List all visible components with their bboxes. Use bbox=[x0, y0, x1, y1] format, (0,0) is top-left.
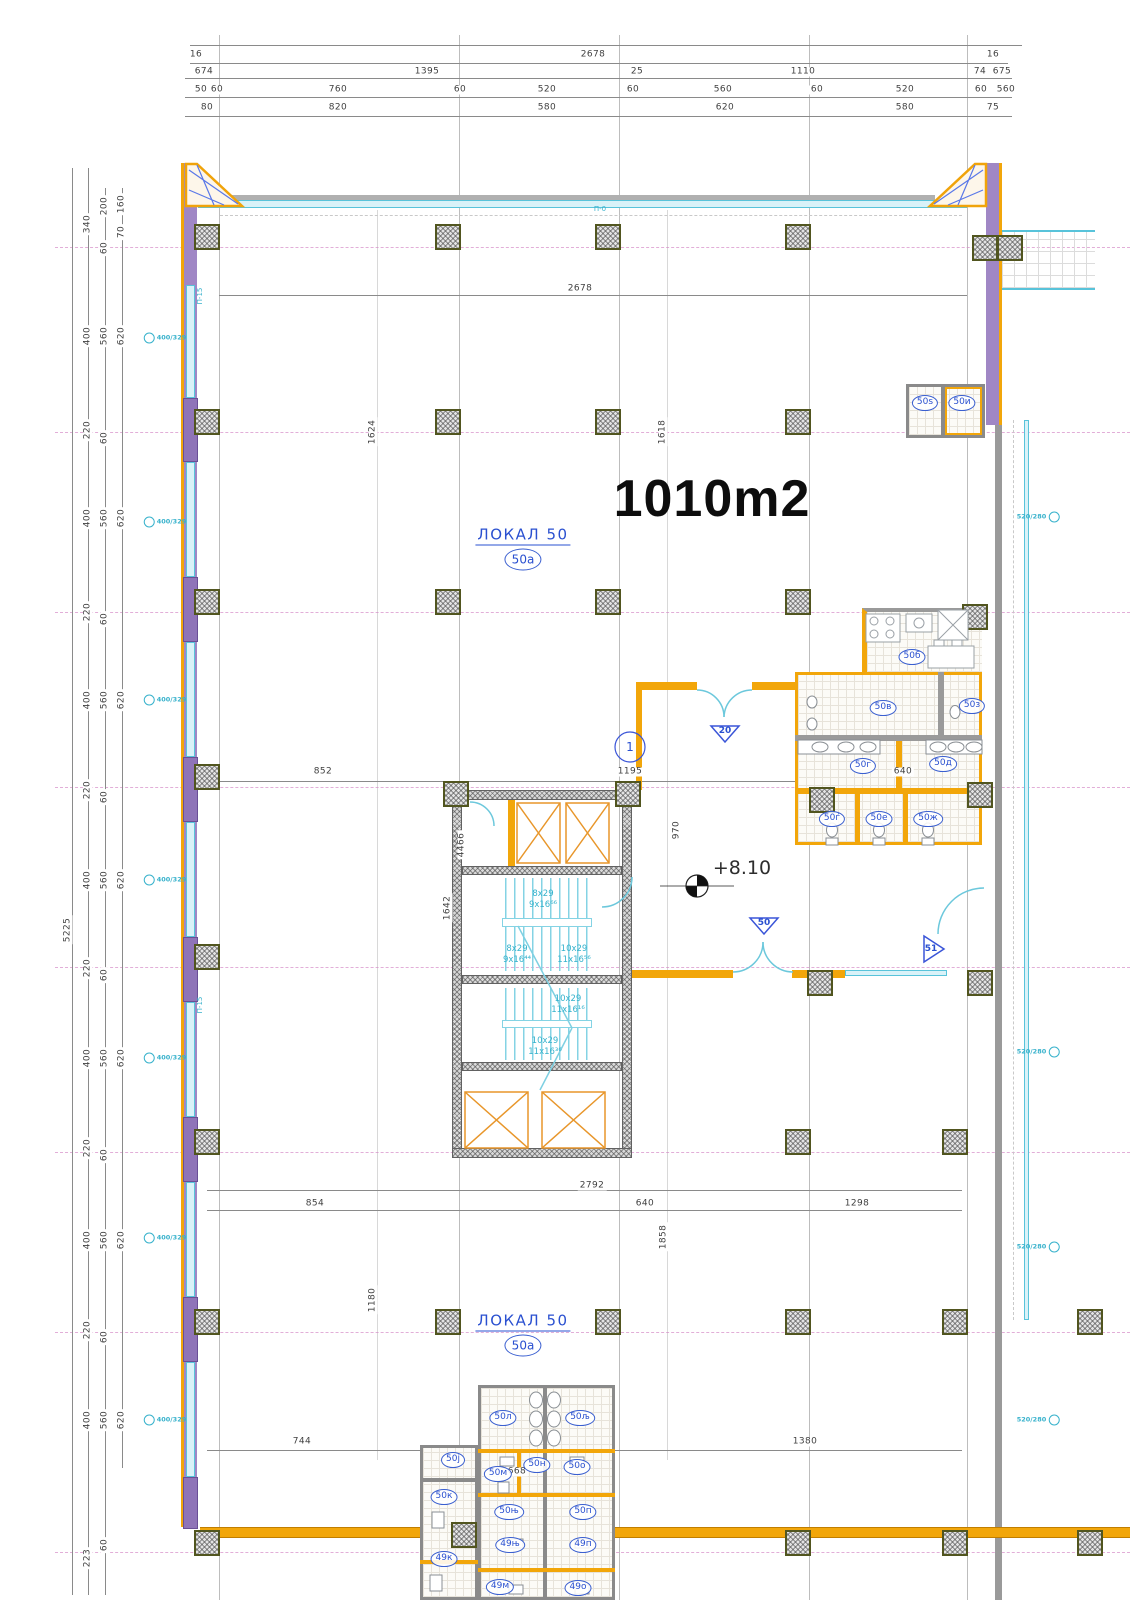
dimension-label: 560 bbox=[101, 869, 110, 891]
dimension-label: 620 bbox=[118, 869, 127, 891]
dimension-label: 1642 bbox=[444, 894, 453, 923]
cluster-wall bbox=[517, 1452, 521, 1497]
dimension-label: 400 bbox=[84, 869, 93, 891]
structural-column bbox=[1077, 1309, 1103, 1335]
marker-number: 1 bbox=[626, 740, 634, 754]
room-tag: 49њ bbox=[495, 1537, 525, 1553]
dimension-label: 1380 bbox=[791, 1438, 820, 1447]
corner-truss-right-bracing bbox=[934, 165, 983, 205]
block-wall bbox=[903, 794, 908, 845]
grid-axis-line bbox=[667, 210, 668, 1460]
grid-axes bbox=[0, 0, 1130, 1600]
grid-axis-line bbox=[55, 432, 1130, 433]
grid-axis-line bbox=[55, 1552, 1130, 1553]
structural-column bbox=[615, 781, 641, 807]
dimension-label: 400 bbox=[84, 1409, 93, 1431]
dimension-label: 520 bbox=[536, 86, 558, 95]
dimension-label: 854 bbox=[304, 1200, 326, 1209]
dimension-label: 2678 bbox=[579, 51, 608, 60]
structural-column bbox=[807, 970, 833, 996]
local-name: ЛОКАЛ 50 bbox=[475, 526, 570, 546]
structural-column bbox=[785, 1530, 811, 1556]
room-tag: 49м bbox=[486, 1579, 514, 1595]
kitchen-fixtures bbox=[866, 610, 974, 668]
dimension-label: 620 bbox=[714, 104, 736, 113]
left-wall-pier bbox=[183, 757, 198, 822]
dimension-label: 668 bbox=[506, 1468, 528, 1477]
window-tag: 520/280 bbox=[1017, 1047, 1060, 1058]
window-tag-circle bbox=[144, 1233, 155, 1244]
structural-column bbox=[194, 409, 220, 435]
window-tag: 400/329 bbox=[144, 517, 187, 528]
structural-column bbox=[194, 1309, 220, 1335]
dimension-label: 620 bbox=[118, 325, 127, 347]
dimension-label: 75 bbox=[985, 104, 1001, 113]
left-wall-pier bbox=[183, 937, 198, 1002]
dimension-label: 1180 bbox=[369, 1286, 378, 1315]
window-tag-circle bbox=[144, 333, 155, 344]
dimension-label: 60 bbox=[101, 430, 110, 446]
top-window-band bbox=[198, 200, 967, 208]
left-wall-pier bbox=[183, 1117, 198, 1182]
elevation-label: +8.10 bbox=[713, 857, 771, 879]
dimension-label: 25 bbox=[629, 68, 645, 77]
dimension-label: 640 bbox=[892, 768, 914, 777]
stair-landing bbox=[502, 1020, 592, 1028]
dimension-label: 620 bbox=[118, 1047, 127, 1069]
window-tags-left: 400/329400/329400/329400/329400/329400/3… bbox=[0, 0, 1130, 1600]
structural-column bbox=[785, 224, 811, 250]
room-tag: 50к bbox=[431, 1489, 458, 1505]
dimension-label: 2792 bbox=[578, 1182, 607, 1191]
cluster-fixtures bbox=[430, 1392, 589, 1594]
dimension-label: 220 bbox=[84, 1137, 93, 1159]
corner-truss-right bbox=[930, 164, 986, 206]
grid-axis-line bbox=[967, 35, 968, 1600]
left-window bbox=[186, 1002, 195, 1117]
top-dimension-labels: 1626781667413952511107467550607606052060… bbox=[0, 0, 1130, 1600]
structural-column bbox=[194, 764, 220, 790]
dimension-label: 560 bbox=[101, 1047, 110, 1069]
window-tag-circle bbox=[1048, 1415, 1059, 1426]
window-tag-circle bbox=[1048, 1242, 1059, 1253]
dimension-label: 640 bbox=[634, 1200, 656, 1209]
dimension-lines bbox=[0, 0, 1130, 1600]
local-labels: ЛОКАЛ 50 50а ЛОКАЛ 50 50а bbox=[0, 0, 1130, 1600]
room-tag: 50г bbox=[850, 758, 876, 774]
dimension-label: 60 bbox=[101, 611, 110, 627]
balcony-grid bbox=[1002, 230, 1095, 290]
structural-column bbox=[194, 589, 220, 615]
room-tag: 50о bbox=[564, 1459, 591, 1475]
grid-axis-line bbox=[809, 35, 810, 1600]
room-tag: 50н bbox=[523, 1457, 550, 1473]
bottom-wall-band bbox=[200, 1527, 1130, 1538]
room-tag: 50е bbox=[866, 811, 893, 827]
block-wall bbox=[855, 794, 860, 845]
left-window bbox=[186, 462, 195, 577]
wall-tags: П-15П-15П-0 bbox=[0, 0, 1130, 1600]
dimension-label: 220 bbox=[84, 601, 93, 623]
room-tag: 50њ bbox=[494, 1504, 524, 1520]
dimension-label: 160 bbox=[118, 193, 127, 215]
dimension-label: 1195 bbox=[616, 768, 645, 777]
dimension-label: 5225 bbox=[64, 916, 73, 945]
marker-number: 51 bbox=[925, 944, 938, 954]
stair-landing bbox=[502, 918, 592, 927]
window-tag-circle bbox=[144, 695, 155, 706]
dimension-label: 16 bbox=[985, 51, 1001, 60]
cluster-wall bbox=[543, 1385, 547, 1600]
core-wall bbox=[622, 790, 632, 1158]
structural-column bbox=[194, 1530, 220, 1556]
grid-axis-line bbox=[55, 967, 1130, 968]
dimension-label: 560 bbox=[101, 325, 110, 347]
structural-column bbox=[451, 1522, 477, 1548]
corridor-wall bbox=[752, 682, 795, 690]
annex-wall bbox=[420, 1560, 478, 1564]
dimension-label: 220 bbox=[84, 1319, 93, 1341]
structural-column bbox=[942, 1530, 968, 1556]
structural-column bbox=[962, 604, 988, 630]
grid-axis-line bbox=[55, 1152, 1130, 1153]
structural-column bbox=[785, 589, 811, 615]
dimension-label: 70 bbox=[118, 224, 127, 240]
room-tag: 50в bbox=[870, 700, 897, 716]
dimension-label: 220 bbox=[84, 419, 93, 441]
structural-column bbox=[194, 944, 220, 970]
stair-step-label: 10x2911x16⁵⁶ bbox=[557, 944, 590, 966]
dimension-label: 760 bbox=[327, 86, 349, 95]
dimension-label: 60 bbox=[101, 967, 110, 983]
left-dimension-labels: 3402001607060400560620220604005606202206… bbox=[0, 0, 1130, 1600]
stair-run-lines bbox=[518, 926, 572, 1090]
room-tag: 50ж bbox=[913, 811, 943, 827]
stair-flight bbox=[505, 1028, 590, 1060]
dimension-label: 1395 bbox=[413, 68, 442, 77]
dimension-label: 74 bbox=[972, 68, 988, 77]
core-wall bbox=[462, 1062, 622, 1071]
window-tag-circle bbox=[1048, 1047, 1059, 1058]
grid-axis-line bbox=[55, 612, 1130, 613]
dimension-label: 620 bbox=[118, 1229, 127, 1251]
dimension-label: 560 bbox=[101, 1229, 110, 1251]
structural-column bbox=[595, 409, 621, 435]
window-tags-right: 520/280520/280520/280520/280 bbox=[0, 0, 1130, 1600]
corner-truss-left bbox=[186, 164, 242, 206]
sanitary-fixtures bbox=[798, 696, 982, 845]
local-label: ЛОКАЛ 50 50а bbox=[475, 1312, 570, 1357]
local-tag-circle: 50а bbox=[505, 549, 542, 571]
room-tag: 49к bbox=[431, 1551, 458, 1567]
core-wall bbox=[452, 790, 462, 1158]
room-tag: 50ѓ bbox=[819, 811, 845, 827]
room-tag: 50љ bbox=[565, 1410, 595, 1426]
structural-column bbox=[967, 782, 993, 808]
sanitary-block bbox=[795, 672, 982, 845]
dimension-label: 520 bbox=[894, 86, 916, 95]
dimension-label: 340 bbox=[84, 213, 93, 235]
dimension-label: 675 bbox=[991, 68, 1013, 77]
small-rooms bbox=[906, 384, 985, 438]
stair-step-label: 8x299x16⁴⁴ bbox=[503, 944, 531, 966]
dimension-label: 620 bbox=[118, 689, 127, 711]
dimension-label: 560 bbox=[101, 689, 110, 711]
structural-column bbox=[194, 1129, 220, 1155]
grid-axis-line bbox=[55, 1332, 1130, 1333]
structural-column bbox=[443, 781, 469, 807]
room-tag: 50и bbox=[948, 395, 975, 411]
dimension-label: 16 bbox=[188, 51, 204, 60]
block-wall bbox=[938, 672, 944, 735]
small-rooms-divider bbox=[941, 384, 945, 438]
left-window bbox=[186, 1182, 195, 1297]
left-wall-pier bbox=[183, 1477, 198, 1529]
stair-flight bbox=[505, 988, 590, 1020]
south-wall bbox=[792, 970, 845, 978]
dimension-label: 220 bbox=[84, 957, 93, 979]
stair-step-label: 8x299x16⁶⁶ bbox=[529, 889, 557, 911]
structural-column bbox=[1077, 1530, 1103, 1556]
structural-column bbox=[435, 1309, 461, 1335]
local-label: ЛОКАЛ 50 50а bbox=[475, 526, 570, 571]
room-tag: 49о bbox=[565, 1580, 592, 1596]
structural-column bbox=[435, 589, 461, 615]
detail-circle-marker bbox=[615, 732, 645, 762]
dimension-label: 220 bbox=[84, 779, 93, 801]
dimension-label: 60 bbox=[101, 1537, 110, 1553]
building-structure bbox=[0, 0, 1130, 1600]
dimension-label: 560 bbox=[101, 507, 110, 529]
dimension-label: 60 bbox=[101, 1329, 110, 1345]
dimension-label: 560 bbox=[995, 86, 1017, 95]
dimension-label: 60 bbox=[101, 789, 110, 805]
block-wall bbox=[795, 788, 982, 794]
room-tag: 50б bbox=[898, 649, 925, 665]
dimension-label: 400 bbox=[84, 1229, 93, 1251]
grid-axis-line bbox=[377, 210, 378, 1460]
dimension-label: 60 bbox=[809, 86, 825, 95]
area-label: 1010m2 bbox=[614, 469, 811, 529]
section-triangles bbox=[711, 726, 944, 962]
right-window-line bbox=[1024, 420, 1029, 1320]
room-tag: 50п bbox=[569, 1504, 596, 1520]
dimension-label: 620 bbox=[118, 1409, 127, 1431]
dimension-label: 2678 bbox=[566, 285, 595, 294]
dimension-label: 60 bbox=[625, 86, 641, 95]
window-tag: 400/329 bbox=[144, 333, 187, 344]
dimension-label: 560 bbox=[712, 86, 734, 95]
core-wall bbox=[452, 790, 632, 800]
dimension-label: 60 bbox=[101, 240, 110, 256]
window-tag: 520/280 bbox=[1017, 512, 1060, 523]
stair-step-label: 10x2911x16¹⁶ bbox=[551, 994, 584, 1016]
structural-column bbox=[972, 235, 998, 261]
dimension-label: 4466 bbox=[458, 831, 467, 860]
south-wall bbox=[632, 970, 733, 978]
right-wall-lower bbox=[995, 425, 1002, 1600]
window-tag: 520/280 bbox=[1017, 1242, 1060, 1253]
cluster-wall bbox=[478, 1449, 615, 1453]
dimension-label: 744 bbox=[291, 1438, 313, 1447]
kitchen-room bbox=[862, 608, 982, 672]
room-tag: 49п bbox=[569, 1537, 596, 1553]
corridor-wall bbox=[636, 682, 697, 690]
left-window bbox=[186, 642, 195, 757]
structural-column bbox=[435, 409, 461, 435]
dimension-label: 1858 bbox=[660, 1223, 669, 1252]
room-tag: 50з bbox=[959, 698, 985, 714]
marker-number: 20 bbox=[719, 726, 732, 736]
structural-column bbox=[194, 224, 220, 250]
window-tag: 400/329 bbox=[144, 695, 187, 706]
window-tag-circle bbox=[144, 517, 155, 528]
dimension-label: 223 bbox=[84, 1547, 93, 1569]
elevator-shafts bbox=[465, 803, 609, 1148]
window-tag-circle bbox=[144, 875, 155, 886]
structural-column bbox=[942, 1309, 968, 1335]
bottom-annex bbox=[420, 1445, 478, 1600]
corridor-wall bbox=[636, 690, 642, 790]
structural-column bbox=[967, 970, 993, 996]
window-tag: 520/280 bbox=[1017, 1415, 1060, 1426]
block-wall bbox=[896, 741, 902, 788]
top-wall bbox=[230, 195, 935, 200]
columns-layer bbox=[0, 0, 1130, 1600]
left-wall-pier bbox=[183, 1297, 198, 1362]
dimension-label: 400 bbox=[84, 325, 93, 347]
left-window bbox=[186, 822, 195, 937]
structural-column bbox=[785, 1129, 811, 1155]
room-tag: 50л bbox=[489, 1410, 516, 1426]
room-tag: 50ѕ bbox=[912, 395, 938, 411]
left-wall-pier bbox=[183, 577, 198, 642]
left-wall-pier bbox=[183, 398, 198, 462]
dimension-label: 400 bbox=[84, 1047, 93, 1069]
core-wall bbox=[452, 1148, 632, 1158]
dimension-label: 620 bbox=[118, 507, 127, 529]
block-wall bbox=[795, 735, 982, 741]
detail-overlay bbox=[0, 0, 1130, 1600]
window-tag-circle bbox=[1048, 512, 1059, 523]
corner-truss-left-bracing bbox=[189, 165, 238, 205]
local-name: ЛОКАЛ 50 bbox=[475, 1312, 570, 1332]
grid-axis-line bbox=[219, 35, 220, 1600]
structural-column bbox=[435, 224, 461, 250]
dimension-label: 1624 bbox=[369, 418, 378, 447]
annex-wall bbox=[420, 1478, 478, 1482]
dimension-label: 674 bbox=[193, 68, 215, 77]
window-tag: 400/329 bbox=[144, 1053, 187, 1064]
dimension-label: 580 bbox=[536, 104, 558, 113]
window-tag-circle bbox=[144, 1415, 155, 1426]
stair-step-labels: 8x299x16⁶⁶ 8x299x16⁴⁴ 10x2911x16⁵⁶ 10x29… bbox=[0, 0, 1130, 1600]
inner-dimension-labels: 2678162416188521195640446616429702792854… bbox=[0, 0, 1130, 1600]
dimension-label: 80 bbox=[199, 104, 215, 113]
room-tag: 50ј bbox=[441, 1452, 465, 1468]
stair-flight bbox=[505, 878, 590, 918]
wall-tag: П-0 bbox=[594, 205, 606, 213]
window-tag: 400/329 bbox=[144, 875, 187, 886]
dimension-label: 60 bbox=[209, 86, 225, 95]
structural-column bbox=[785, 409, 811, 435]
core-partition bbox=[508, 800, 515, 866]
left-wall-edge bbox=[181, 163, 184, 1527]
dimension-label: 820 bbox=[327, 104, 349, 113]
grid-axis-line bbox=[619, 35, 620, 1600]
dimension-label: 60 bbox=[101, 1147, 110, 1163]
structural-column bbox=[595, 224, 621, 250]
stair-step-label: 10x2911x16³⁶ bbox=[528, 1036, 561, 1058]
grid-axis-line bbox=[459, 35, 460, 1600]
dimension-label: 50 bbox=[193, 86, 209, 95]
dimension-label: 1110 bbox=[789, 68, 818, 77]
room-tag: 50д bbox=[929, 756, 957, 772]
window-tag-circle bbox=[144, 1053, 155, 1064]
right-wall-edge bbox=[999, 163, 1002, 425]
structural-column bbox=[942, 1129, 968, 1155]
cluster-wall bbox=[478, 1568, 615, 1572]
floor-plan-sheet: 1626781667413952511107467550607606052060… bbox=[0, 0, 1130, 1600]
wall-tag: П-15 bbox=[196, 288, 204, 305]
left-wall bbox=[184, 163, 197, 1527]
core-wall bbox=[462, 975, 622, 984]
plan-markers: 1205051 bbox=[0, 0, 1130, 1600]
dimension-label: 60 bbox=[452, 86, 468, 95]
core-wall bbox=[462, 866, 622, 875]
marker-number: 50 bbox=[758, 918, 771, 928]
grid-axis-line bbox=[55, 787, 1130, 788]
small-room-orange-outline bbox=[945, 387, 982, 435]
structural-column bbox=[809, 787, 835, 813]
structural-column bbox=[595, 589, 621, 615]
dimension-label: 852 bbox=[312, 768, 334, 777]
window-tag: 400/329 bbox=[144, 1233, 187, 1244]
dimension-label: 1618 bbox=[659, 418, 668, 447]
structural-column bbox=[785, 1309, 811, 1335]
dimension-label: 400 bbox=[84, 507, 93, 529]
south-window bbox=[845, 970, 947, 976]
dimension-label: 60 bbox=[973, 86, 989, 95]
structural-column bbox=[997, 235, 1023, 261]
cluster-wall bbox=[478, 1493, 615, 1497]
room-tag: 50м bbox=[484, 1466, 512, 1482]
dimension-label: 560 bbox=[101, 1409, 110, 1431]
room-tags: 50ѕ50и50б50в50з50г50д50ѓ50е50ж50л50љ50ј5… bbox=[0, 0, 1130, 1600]
left-window bbox=[186, 285, 195, 398]
window-tag: 400/329 bbox=[144, 1415, 187, 1426]
local-tag-circle: 50а bbox=[505, 1335, 542, 1357]
dimension-label: 970 bbox=[673, 819, 682, 841]
bottom-cluster bbox=[478, 1385, 615, 1600]
wall-tag: П-15 bbox=[196, 997, 204, 1014]
left-window bbox=[186, 1362, 195, 1477]
dimension-label: 400 bbox=[84, 689, 93, 711]
dimension-label: 200 bbox=[101, 195, 110, 217]
structural-column bbox=[595, 1309, 621, 1335]
grid-axis-line bbox=[55, 247, 1130, 248]
dimension-label: 580 bbox=[894, 104, 916, 113]
stair-flight bbox=[505, 927, 590, 971]
dimension-label: 1298 bbox=[843, 1200, 872, 1209]
door-arcs bbox=[470, 690, 984, 972]
right-wall bbox=[986, 163, 1000, 425]
